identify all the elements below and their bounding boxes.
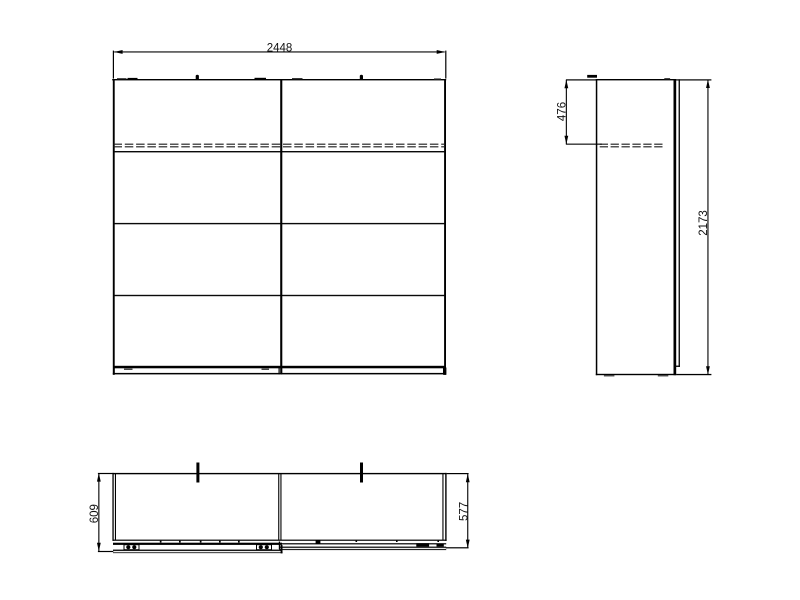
svg-text:577: 577: [459, 502, 471, 521]
svg-text:2173: 2173: [698, 210, 710, 236]
svg-text:476: 476: [557, 102, 569, 121]
svg-text:2448: 2448: [267, 43, 293, 55]
svg-text:609: 609: [89, 504, 101, 523]
